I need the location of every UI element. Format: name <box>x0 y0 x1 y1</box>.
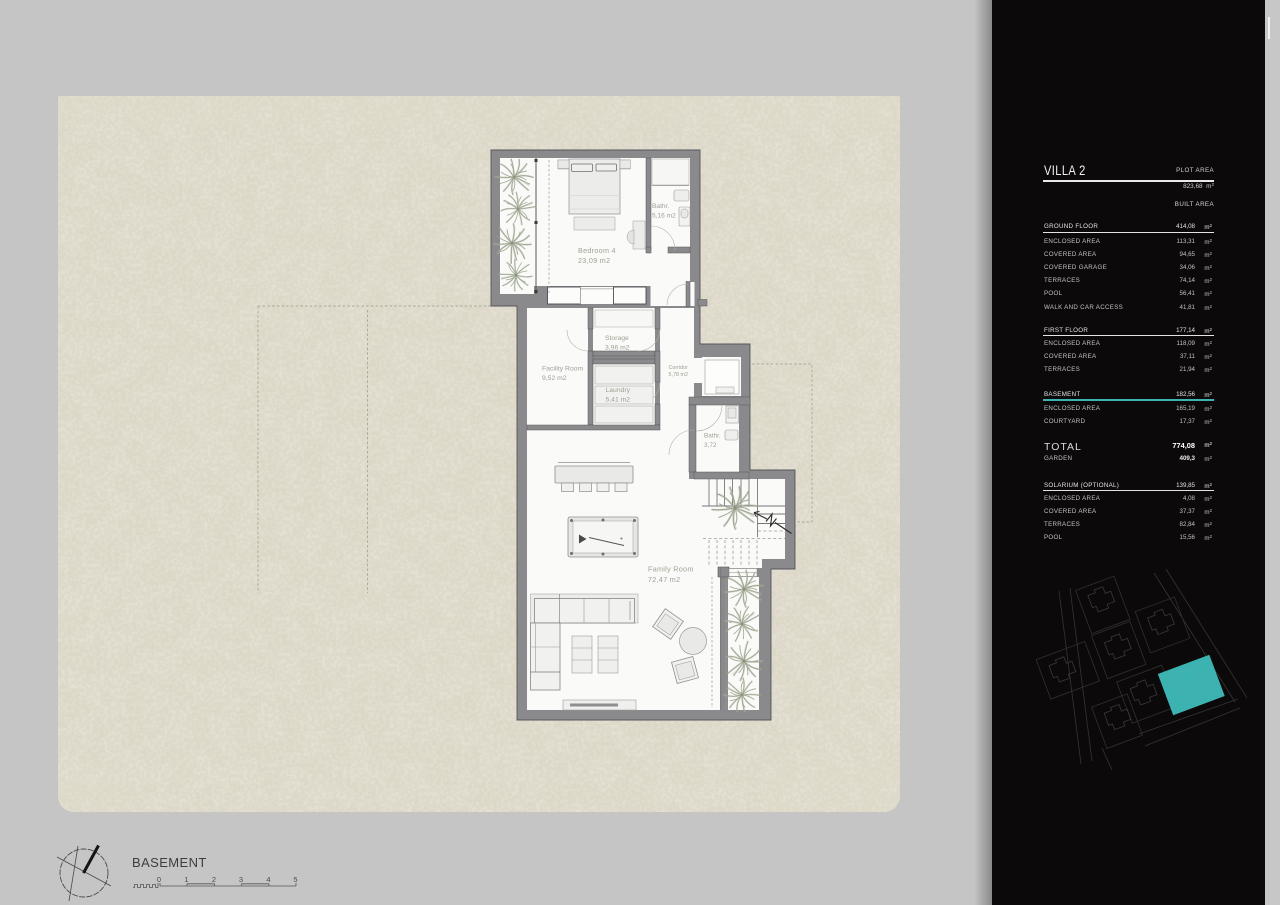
svg-text:Facility Room: Facility Room <box>542 366 584 373</box>
svg-text:Storage: Storage <box>605 335 629 342</box>
svg-text:5,78 m2: 5,78 m2 <box>669 372 688 378</box>
svg-text:1: 1 <box>184 875 188 884</box>
svg-text:Bathr.: Bathr. <box>652 203 669 210</box>
svg-text:3,72: 3,72 <box>704 442 717 449</box>
svg-text:9,52 m2: 9,52 m2 <box>542 375 567 382</box>
svg-text:BASEMENT: BASEMENT <box>132 855 207 870</box>
svg-text:0: 0 <box>157 875 161 884</box>
svg-text:5,16 m2: 5,16 m2 <box>652 213 676 220</box>
svg-text:5,41 m2: 5,41 m2 <box>606 397 631 404</box>
svg-text:Bathr.: Bathr. <box>704 433 721 440</box>
svg-text:23,09 m2: 23,09 m2 <box>578 256 610 265</box>
svg-text:3,96 m2: 3,96 m2 <box>605 345 630 352</box>
svg-text:3: 3 <box>239 875 243 884</box>
svg-text:4: 4 <box>266 875 270 884</box>
svg-text:Family Room: Family Room <box>648 565 694 574</box>
svg-text:Corridor: Corridor <box>669 365 689 371</box>
svg-text:2: 2 <box>212 875 216 884</box>
svg-text:5: 5 <box>293 875 297 884</box>
svg-text:72,47 m2: 72,47 m2 <box>648 575 680 584</box>
svg-text:Laundry: Laundry <box>606 387 631 394</box>
svg-text:Bedroom 4: Bedroom 4 <box>578 246 616 255</box>
